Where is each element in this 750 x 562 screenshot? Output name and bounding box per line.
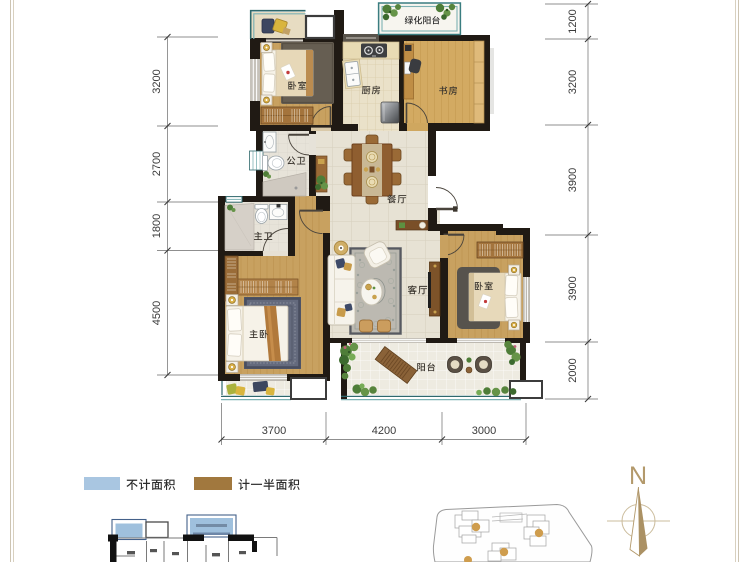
svg-text:3700: 3700 xyxy=(262,425,286,437)
svg-text:1800: 1800 xyxy=(151,214,163,238)
svg-text:4200: 4200 xyxy=(372,425,396,437)
svg-text:3200: 3200 xyxy=(151,69,163,93)
svg-text:3900: 3900 xyxy=(567,276,579,300)
svg-text:3200: 3200 xyxy=(567,70,579,94)
svg-text:2700: 2700 xyxy=(151,152,163,176)
svg-text:N: N xyxy=(629,462,647,490)
svg-text:3000: 3000 xyxy=(472,425,496,437)
svg-text:3900: 3900 xyxy=(567,168,579,192)
svg-text:4500: 4500 xyxy=(151,301,163,325)
svg-text:1200: 1200 xyxy=(567,9,579,33)
svg-text:2000: 2000 xyxy=(567,358,579,382)
